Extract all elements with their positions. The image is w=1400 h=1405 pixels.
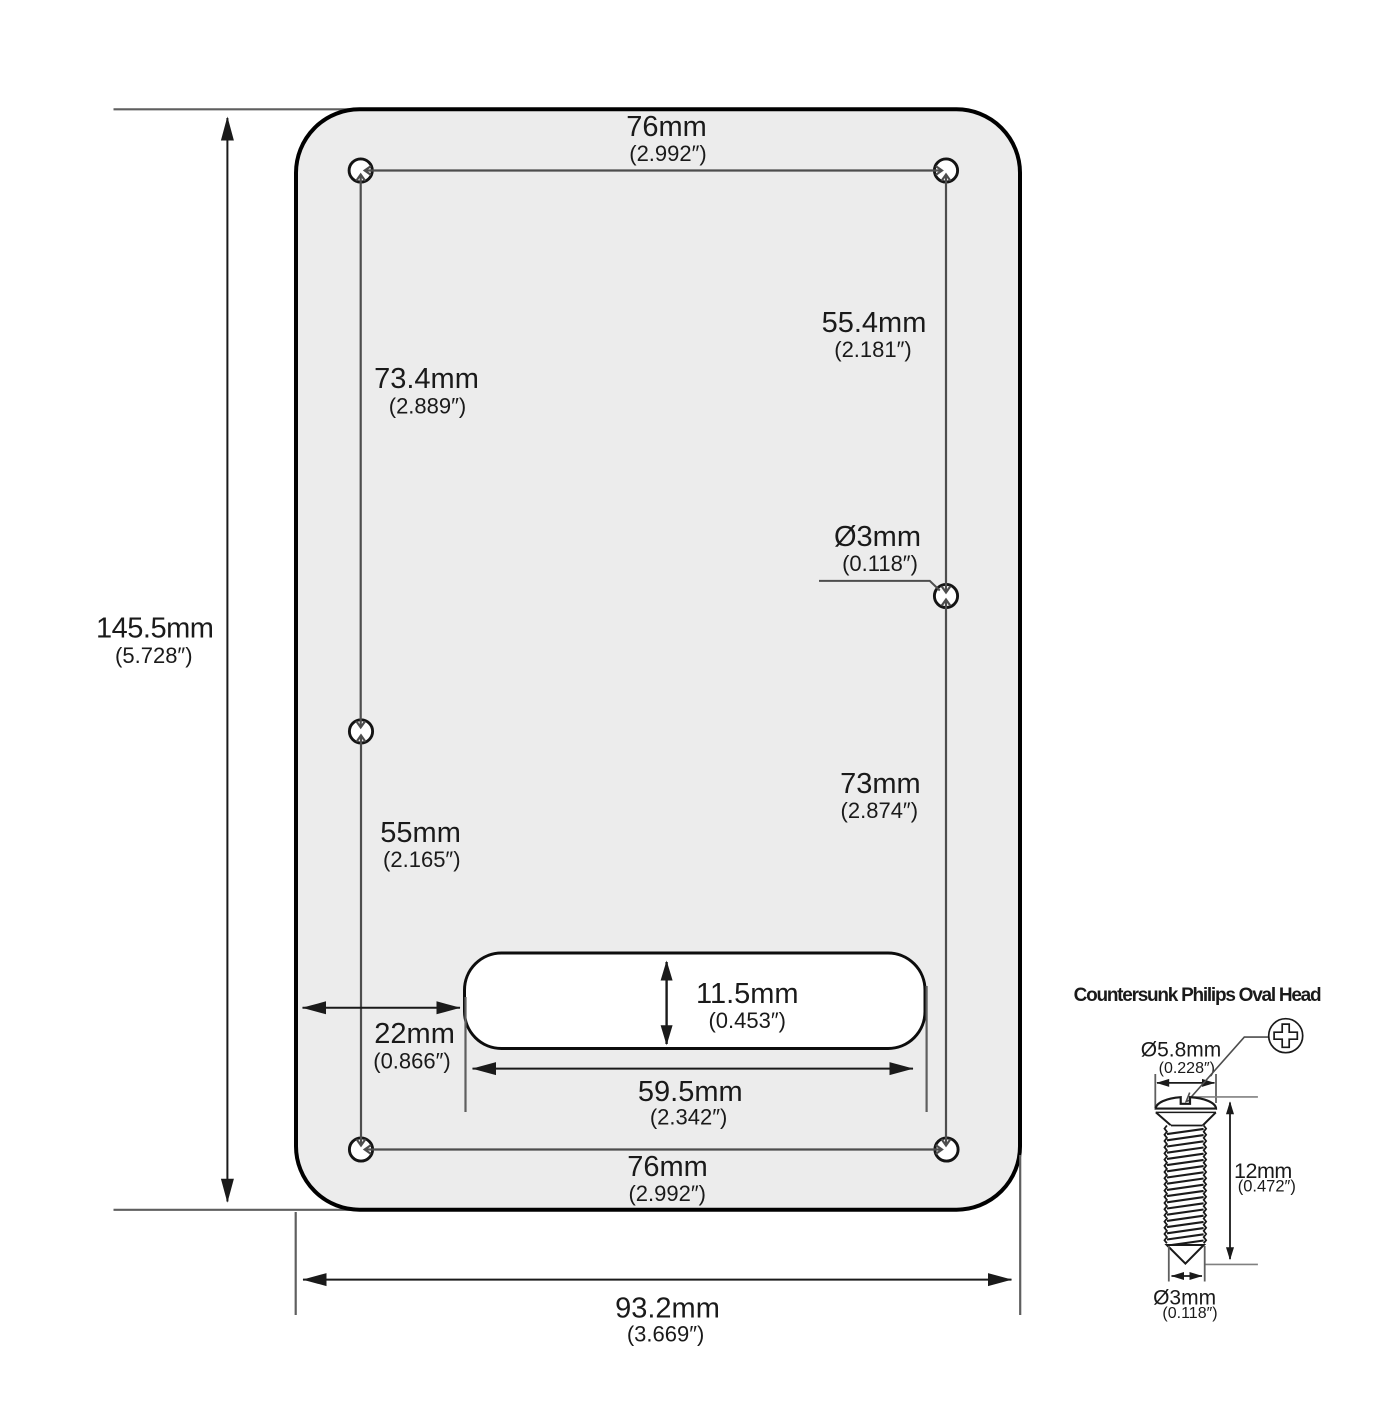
svg-text:(2.181″): (2.181″) [834, 337, 912, 362]
svg-text:55mm: 55mm [380, 817, 461, 849]
svg-text:93.2mm: 93.2mm [615, 1293, 720, 1325]
svg-text:Countersunk Philips Oval Head: Countersunk Philips Oval Head [1074, 985, 1321, 1006]
svg-text:11.5mm: 11.5mm [696, 978, 799, 1010]
svg-text:73mm: 73mm [840, 768, 921, 800]
svg-text:(2.992″): (2.992″) [628, 1181, 706, 1206]
svg-text:(0.228″): (0.228″) [1159, 1060, 1215, 1077]
svg-text:Ø5.8mm: Ø5.8mm [1141, 1039, 1222, 1062]
svg-text:76mm: 76mm [626, 111, 707, 143]
svg-text:(2.342″): (2.342″) [650, 1105, 728, 1130]
svg-text:73.4mm: 73.4mm [374, 363, 479, 395]
svg-text:22mm: 22mm [374, 1018, 455, 1050]
svg-text:(0.866″): (0.866″) [373, 1049, 451, 1074]
svg-text:(2.165″): (2.165″) [383, 847, 461, 872]
svg-text:(5.728″): (5.728″) [115, 643, 193, 668]
svg-text:Ø3mm: Ø3mm [834, 521, 921, 553]
svg-text:(2.889″): (2.889″) [389, 394, 467, 419]
svg-text:(0.118″): (0.118″) [1162, 1305, 1217, 1322]
svg-text:(2.874″): (2.874″) [841, 798, 919, 823]
svg-text:(0.453″): (0.453″) [708, 1008, 786, 1033]
svg-text:55.4mm: 55.4mm [822, 307, 927, 339]
svg-text:(0.118″): (0.118″) [842, 551, 918, 576]
svg-text:145.5mm: 145.5mm [96, 613, 213, 645]
svg-text:(2.992″): (2.992″) [629, 141, 707, 166]
svg-text:(0.472″): (0.472″) [1238, 1178, 1296, 1196]
svg-text:59.5mm: 59.5mm [638, 1076, 743, 1108]
svg-text:(3.669″): (3.669″) [627, 1322, 705, 1347]
svg-text:76mm: 76mm [627, 1151, 708, 1183]
